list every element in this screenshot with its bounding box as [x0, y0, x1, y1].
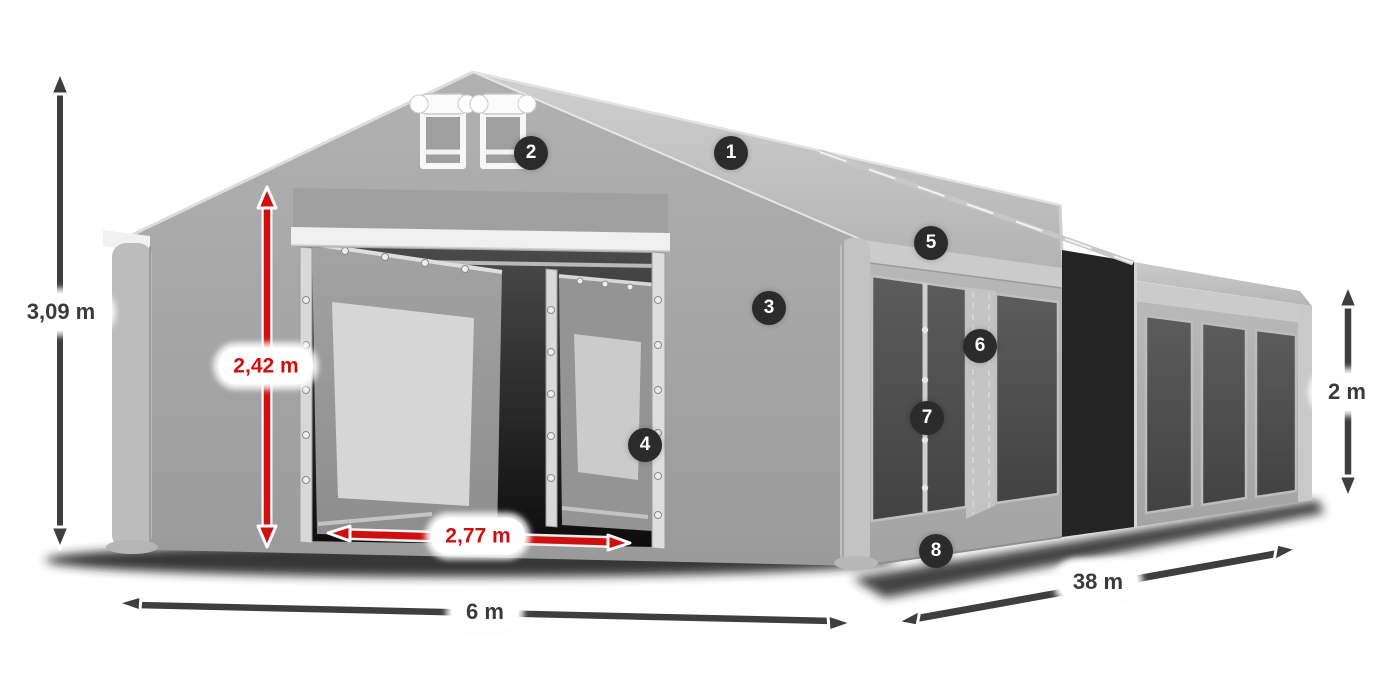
dim-label-side-length: 38 m: [1058, 563, 1138, 601]
corner-cover-left: [112, 243, 152, 549]
hotspot-badge-7[interactable]: 7: [910, 401, 944, 435]
hotspot-badge-8[interactable]: 8: [919, 534, 953, 568]
dim-label-entrance-width: 2,77 m: [430, 518, 525, 555]
side-window: [872, 276, 966, 521]
door-flap-window: [332, 302, 474, 506]
hotspot-badge-1[interactable]: 1: [714, 136, 748, 170]
hotspot-badge-3[interactable]: 3: [752, 291, 786, 325]
hotspot-badge-4[interactable]: 4: [628, 428, 662, 462]
entrance-header: [293, 188, 668, 233]
entrance-opening: [300, 242, 665, 549]
side-window: [1146, 316, 1192, 513]
side-window: [1256, 330, 1296, 497]
dim-label-side-wall-height: 2 m: [1313, 373, 1381, 411]
side-window: [1202, 323, 1246, 505]
open-gap: [1062, 250, 1134, 537]
corner-cover-right: [840, 238, 870, 566]
tent-dimensions-diagram: 3,09 m 2,42 m 2,77 m 6 m 38 m 2 m 1 2 3 …: [0, 0, 1400, 700]
side-wall: [862, 240, 1062, 566]
hotspot-badge-5[interactable]: 5: [914, 226, 948, 260]
entrance-post-left: [300, 247, 312, 543]
side-post-cover: [966, 287, 996, 519]
side-window: [996, 294, 1058, 503]
rear-corner-cover: [1298, 306, 1312, 502]
rear-module: [1134, 262, 1312, 527]
door-flap-inner-window: [574, 334, 641, 480]
dim-label-entrance-height: 2,42 m: [218, 348, 313, 385]
dim-label-total-height: 3,09 m: [12, 293, 111, 331]
hotspot-badge-6[interactable]: 6: [963, 329, 997, 363]
hotspot-badge-2[interactable]: 2: [514, 136, 548, 170]
tent-illustration: [0, 0, 1400, 700]
dim-label-front-width: 6 m: [451, 593, 519, 631]
